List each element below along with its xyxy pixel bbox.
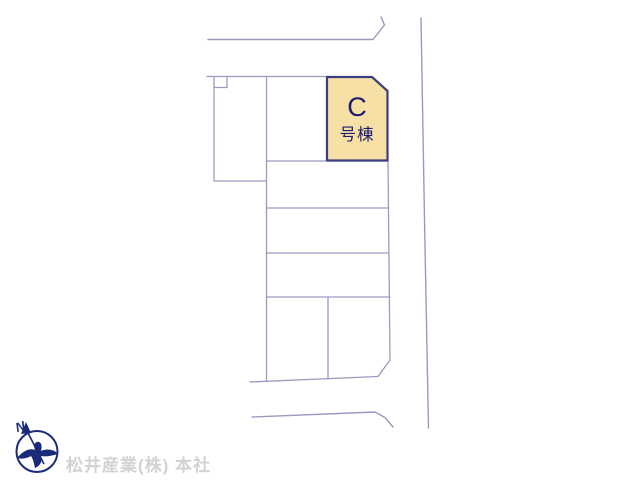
highlighted-lot-suffix: 号棟 <box>340 125 375 144</box>
compass-north-logo: N <box>13 418 58 472</box>
lot-block-right-edge <box>378 161 390 377</box>
bird-logo-icon <box>17 442 58 468</box>
lot-left-notch <box>214 77 227 88</box>
company-name-watermark: 松井産業(株) 本社 <box>66 451 211 476</box>
road-edge-right <box>421 18 429 428</box>
site-plan-drawing: C 号棟 N <box>0 0 640 480</box>
highlighted-lot-letter: C <box>347 92 367 122</box>
lot-left-outline <box>214 77 267 182</box>
site-plan-image: C 号棟 N 松井産業(株) 本社 <box>0 0 640 480</box>
road-edge-bottom <box>252 412 393 427</box>
lot-block-bottom-edge <box>250 377 378 383</box>
road-edge-top <box>208 17 385 40</box>
